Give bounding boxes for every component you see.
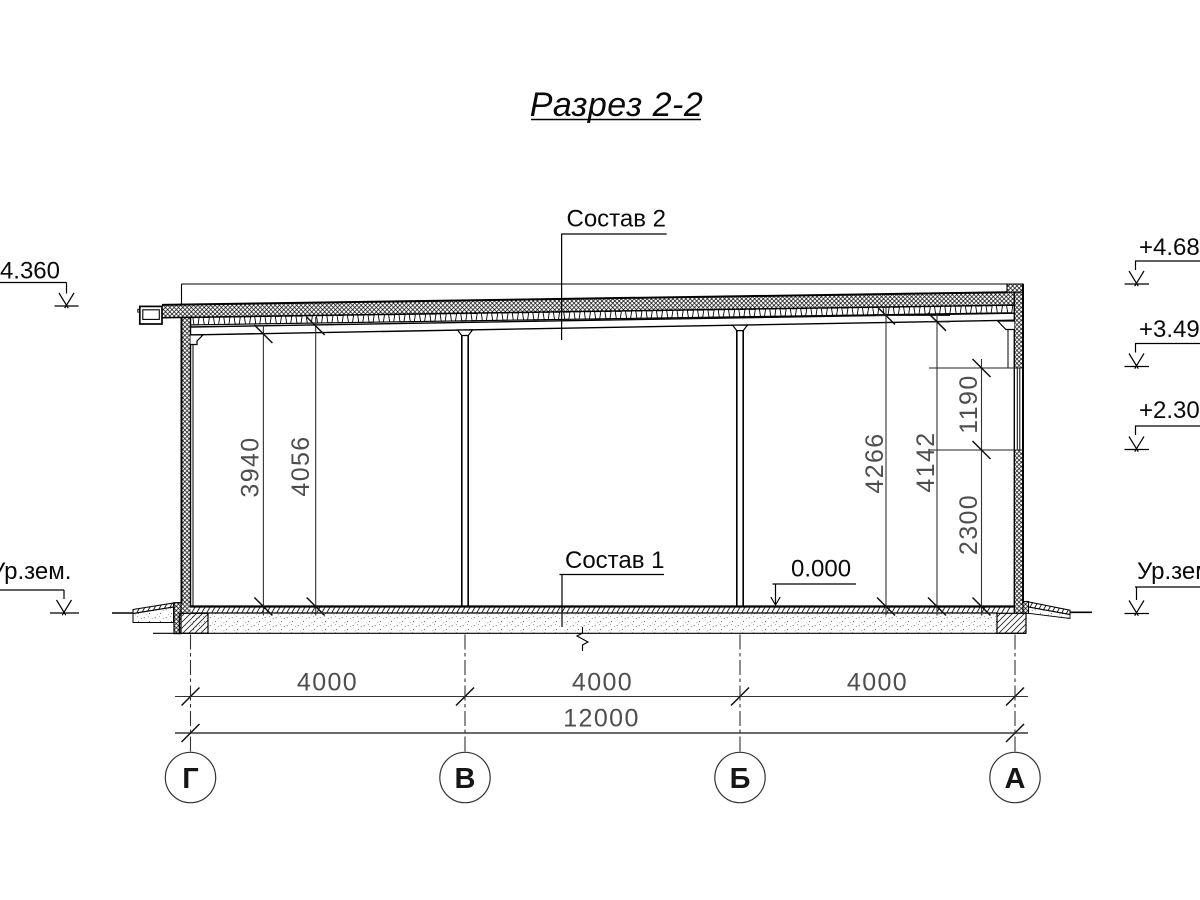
svg-text:4142: 4142 bbox=[912, 431, 940, 492]
svg-text:Ур.зем.: Ур.зем. bbox=[0, 558, 71, 585]
svg-text:4000: 4000 bbox=[847, 669, 908, 697]
svg-text:+2.30: +2.30 bbox=[1139, 397, 1200, 424]
svg-text:2300: 2300 bbox=[955, 494, 983, 555]
svg-text:Ур.зем.: Ур.зем. bbox=[1137, 558, 1200, 585]
svg-text:А: А bbox=[1005, 763, 1026, 795]
svg-text:4056: 4056 bbox=[287, 435, 315, 496]
svg-text:Состав 1: Состав 1 bbox=[565, 547, 665, 574]
svg-text:4266: 4266 bbox=[861, 432, 889, 493]
svg-text:+4.68: +4.68 bbox=[1139, 234, 1200, 261]
svg-text:+3.49: +3.49 bbox=[1139, 316, 1200, 343]
svg-text:12000: 12000 bbox=[563, 705, 640, 733]
svg-text:Г: Г bbox=[182, 763, 198, 795]
svg-text:Б: Б bbox=[730, 763, 751, 795]
svg-text:0.000: 0.000 bbox=[791, 556, 851, 583]
svg-text:4000: 4000 bbox=[297, 669, 358, 697]
svg-text:1190: 1190 bbox=[955, 374, 983, 433]
svg-text:+4.360: +4.360 bbox=[0, 258, 60, 285]
svg-text:4000: 4000 bbox=[572, 669, 633, 697]
svg-text:Разрез 2-2: Разрез 2-2 bbox=[530, 86, 703, 124]
svg-text:3940: 3940 bbox=[237, 436, 265, 497]
svg-text:Состав 2: Состав 2 bbox=[567, 206, 667, 233]
svg-text:В: В bbox=[455, 763, 476, 795]
